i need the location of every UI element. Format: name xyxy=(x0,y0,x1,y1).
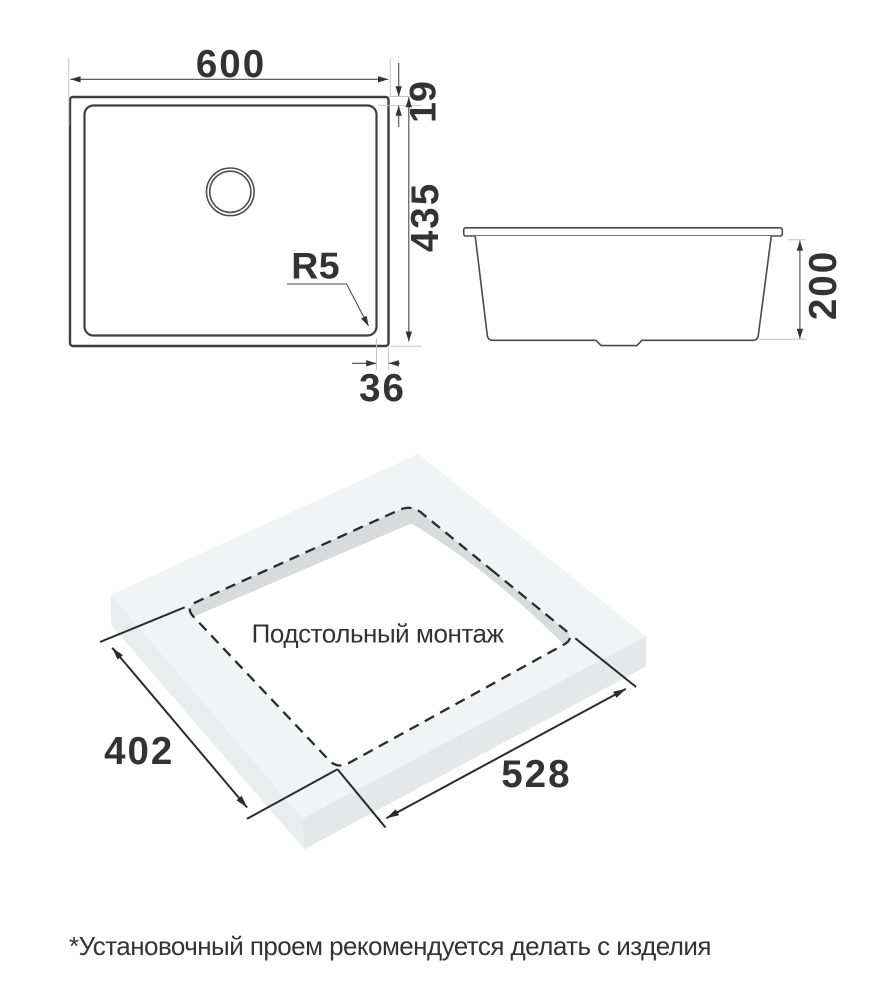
svg-text:Подстольный монтаж: Подстольный монтаж xyxy=(252,619,505,649)
svg-text:200: 200 xyxy=(802,250,845,320)
svg-text:*Установочный проем рекомендуе: *Установочный проем рекомендуется делать… xyxy=(69,931,711,961)
svg-text:600: 600 xyxy=(196,43,266,86)
svg-text:402: 402 xyxy=(104,730,174,773)
svg-text:36: 36 xyxy=(359,367,406,410)
svg-text:528: 528 xyxy=(501,753,571,796)
svg-text:R5: R5 xyxy=(291,245,340,287)
svg-text:435: 435 xyxy=(404,182,447,252)
